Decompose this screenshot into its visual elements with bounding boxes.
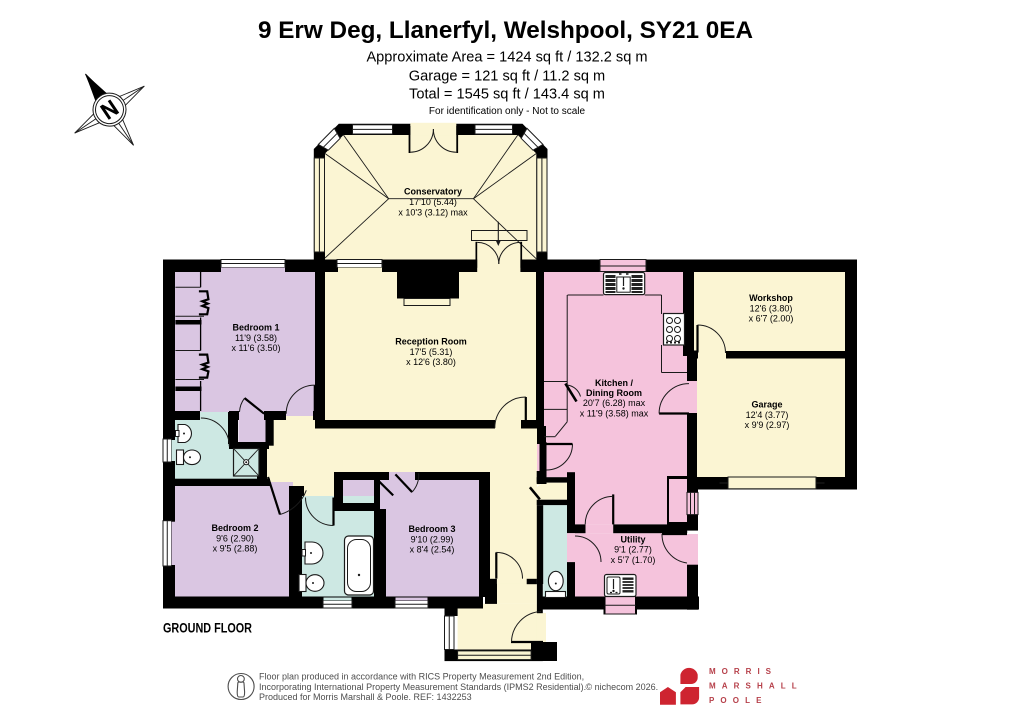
svg-text:17'10 (5.44): 17'10 (5.44) [409,197,457,207]
svg-text:MARSHALL: MARSHALL [709,682,803,691]
svg-text:GROUND FLOOR: GROUND FLOOR [163,621,252,636]
svg-text:For identification only - Not: For identification only - Not to scale [429,106,586,117]
svg-text:Floor plan produced in accorda: Floor plan produced in accordance with R… [259,672,584,682]
svg-text:9 Erw Deg, Llanerfyl, Welshpoo: 9 Erw Deg, Llanerfyl, Welshpool, SY21 0E… [258,17,753,44]
svg-text:x 8'4 (2.54): x 8'4 (2.54) [410,545,455,555]
svg-text:17'5 (5.31): 17'5 (5.31) [410,347,453,357]
svg-text:Bedroom 1: Bedroom 1 [232,323,279,333]
svg-text:Bedroom 2: Bedroom 2 [211,523,258,533]
svg-text:Workshop: Workshop [749,293,793,303]
svg-text:Incorporating International Pr: Incorporating International Property Mea… [259,682,586,692]
svg-text:Utility: Utility [620,534,645,544]
svg-text:x 6'7 (2.00): x 6'7 (2.00) [749,314,794,324]
svg-text:Garage: Garage [751,400,782,410]
svg-text:POOLE: POOLE [709,696,768,705]
svg-text:9'10 (2.99): 9'10 (2.99) [411,534,454,544]
svg-text:x 9'9 (2.97): x 9'9 (2.97) [745,420,790,430]
svg-text:12'6 (3.80): 12'6 (3.80) [750,303,793,313]
svg-text:Conservatory: Conservatory [404,187,462,197]
svg-text:9'1 (2.77): 9'1 (2.77) [614,545,652,555]
svg-text:x 9'5 (2.88): x 9'5 (2.88) [213,544,258,554]
svg-text:Approximate Area = 1424 sq ft: Approximate Area = 1424 sq ft / 132.2 sq… [366,50,647,66]
svg-text:© nichecom 2026.: © nichecom 2026. [586,682,659,692]
svg-text:9'6 (2.90): 9'6 (2.90) [216,533,254,543]
svg-text:x 10'3 (3.12) max: x 10'3 (3.12) max [398,207,468,217]
svg-text:11'9 (3.58): 11'9 (3.58) [235,333,277,343]
svg-text:x 12'6 (3.80): x 12'6 (3.80) [406,357,456,367]
svg-text:Total = 1545 sq ft / 143.4 sq: Total = 1545 sq ft / 143.4 sq m [409,87,605,103]
svg-text:20'7 (6.28) max: 20'7 (6.28) max [583,398,646,408]
svg-text:MORRIS: MORRIS [709,667,777,676]
svg-text:Garage = 121 sq ft / 11.2 sq m: Garage = 121 sq ft / 11.2 sq m [409,69,605,85]
svg-text:Bedroom 3: Bedroom 3 [408,524,455,534]
svg-text:Reception Room: Reception Room [395,337,467,347]
svg-text:Dining Room: Dining Room [586,388,642,398]
svg-text:Produced for Morris Marshall &: Produced for Morris Marshall & Poole. RE… [259,692,472,702]
svg-text:x 11'9 (3.58) max: x 11'9 (3.58) max [580,408,649,418]
svg-text:x 11'6 (3.50): x 11'6 (3.50) [231,343,280,353]
svg-text:x 5'7 (1.70): x 5'7 (1.70) [611,555,656,565]
svg-text:12'4 (3.77): 12'4 (3.77) [746,410,789,420]
svg-text:Kitchen /: Kitchen / [595,378,634,388]
